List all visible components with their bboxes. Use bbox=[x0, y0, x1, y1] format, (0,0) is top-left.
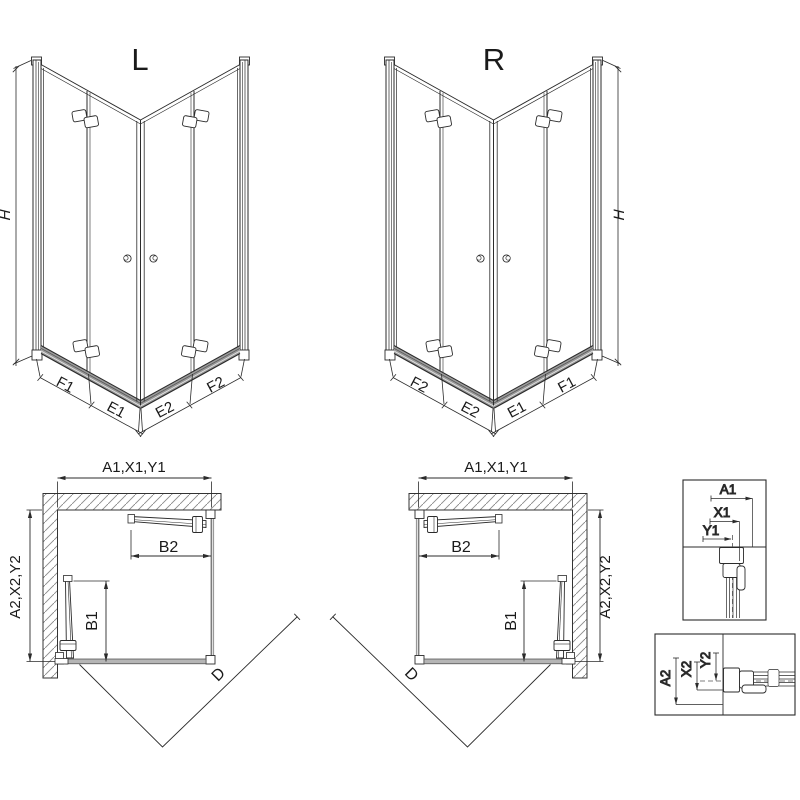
detail-label-a2: A2 bbox=[658, 670, 673, 687]
dim-label-height-left: H bbox=[0, 207, 14, 222]
dim-label-b1-plan-left: B1 bbox=[84, 611, 101, 631]
dim-label-depth-plan-left: A2,X2,Y2 bbox=[7, 555, 24, 618]
dim-label-f1-right: F1 bbox=[555, 373, 578, 396]
view-left-title: L bbox=[131, 42, 148, 77]
dim-label-b2-plan-right: B2 bbox=[451, 539, 471, 556]
dim-label-e1-right: E1 bbox=[505, 398, 529, 422]
detail-label-a1: A1 bbox=[720, 482, 737, 497]
dim-label-width-plan-right: A1,X1,Y1 bbox=[464, 459, 527, 476]
dim-label-b2-plan-left: B2 bbox=[159, 539, 179, 556]
dim-label-f2-right: F2 bbox=[407, 373, 430, 396]
dim-label-e2-left: E2 bbox=[153, 398, 177, 422]
plan-left-lineart bbox=[27, 476, 301, 747]
shower-enclosure-technical-drawing: L H F1 E1 E2 F2 R H F2 E2 E1 F1 A1,X1,Y1… bbox=[0, 0, 800, 800]
dim-label-width-plan-left: A1,X1,Y1 bbox=[102, 459, 165, 476]
dim-label-b1-plan-right: B1 bbox=[503, 611, 520, 631]
technical-drawing-canvas: L H F1 E1 E2 F2 R H F2 E2 E1 F1 A1,X1,Y1… bbox=[0, 0, 800, 800]
dim-label-e1-left: E1 bbox=[104, 398, 128, 422]
detail-box-a1: A1 X1 Y1 bbox=[683, 480, 766, 620]
dim-label-f1-left: F1 bbox=[53, 373, 76, 396]
dim-label-f2-left: F2 bbox=[204, 373, 227, 396]
detail-label-x1: X1 bbox=[714, 505, 731, 520]
dim-label-depth-plan-right: A2,X2,Y2 bbox=[597, 555, 614, 618]
detail-label-y1: Y1 bbox=[703, 523, 720, 538]
view-3d-right: R H F2 E2 E1 F1 bbox=[385, 42, 628, 437]
dim-label-diagonal-plan-right: D bbox=[401, 665, 421, 685]
plan-view-left: A1,X1,Y1 A2,X2,Y2 B2 B1 D bbox=[7, 459, 300, 747]
detail-label-x2: X2 bbox=[679, 661, 694, 678]
plan-right-lineart bbox=[330, 476, 604, 747]
dim-label-e2-right: E2 bbox=[458, 398, 482, 422]
dim-label-height-right: H bbox=[611, 207, 628, 222]
detail-label-y2: Y2 bbox=[698, 652, 713, 669]
detail-box-a2: A2 X2 Y2 bbox=[655, 634, 795, 715]
dim-label-diagonal-plan-left: D bbox=[209, 665, 229, 685]
view-right-title: R bbox=[483, 42, 505, 77]
view-3d-left: L H F1 E1 E2 F2 bbox=[0, 42, 249, 437]
plan-view-right: A1,X1,Y1 A2,X2,Y2 B2 B1 D bbox=[330, 459, 614, 747]
